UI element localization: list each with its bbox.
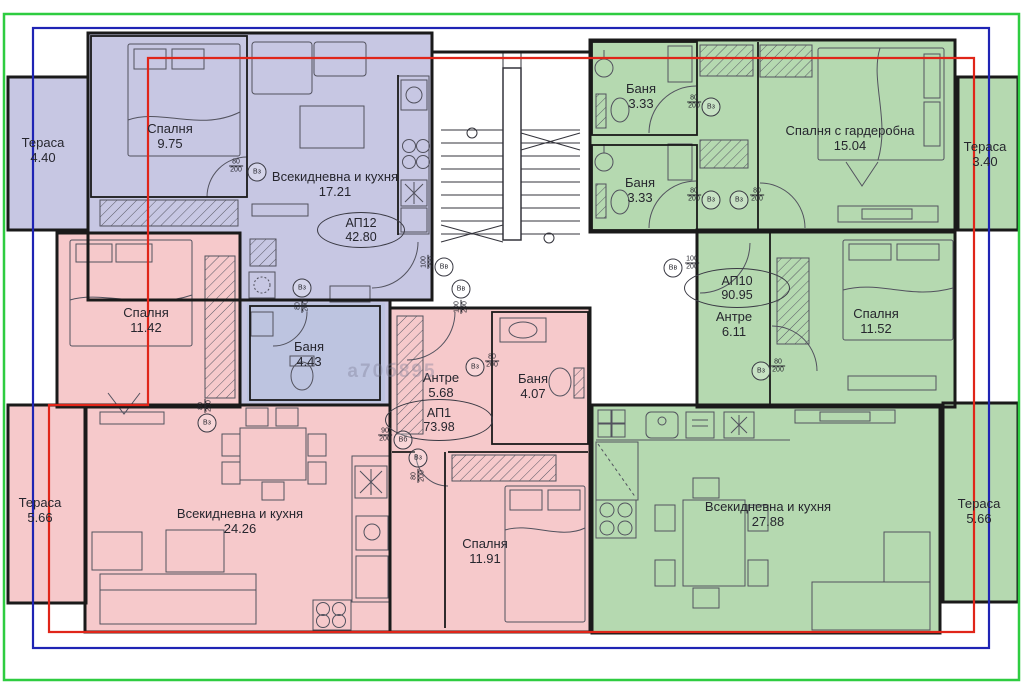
- door-mark-circle: Вз: [409, 449, 428, 468]
- room-label-ap10-master-bedroom: Спалня с гардеробна15.04: [786, 123, 915, 153]
- room-label-ap1-bedroom1: Спалня11.42: [123, 305, 168, 335]
- door-size: 80200: [750, 188, 764, 203]
- room-label-ap10-bath1: Баня3.33: [626, 81, 656, 111]
- door-mark-circle: Вв: [435, 258, 454, 277]
- door-size: 100200: [454, 300, 469, 314]
- room-label-ap10-living: Всекидневна и кухня27.88: [705, 499, 831, 529]
- door-size: 80200: [687, 95, 701, 110]
- door-size: 100200: [421, 255, 436, 269]
- room-label-ap10-bedroom2: Спалня11.52: [853, 306, 898, 336]
- door-mark-circle: Вз: [702, 191, 721, 210]
- apartment-badge-ap10: АП1090.95: [684, 268, 790, 308]
- door-size: 80200: [771, 359, 785, 374]
- door-mark-circle: Вз: [293, 279, 312, 298]
- door-mark-circle: Вб: [394, 431, 413, 450]
- door-size: 80200: [687, 188, 701, 203]
- door-size: 80200: [411, 469, 426, 483]
- room-label-ap1-bath: Баня4.07: [518, 371, 548, 401]
- room-label-ap10-hall: Антре6.11: [716, 309, 752, 339]
- terrace-label-top-left: Тераса4.40: [22, 135, 65, 165]
- door-mark-circle: Вз: [466, 358, 485, 377]
- door-mark-circle: Вз: [730, 191, 749, 210]
- terrace-label-bottom-right: Тераса5.66: [958, 496, 1001, 526]
- door-size: 90200: [378, 428, 392, 443]
- door-size: 80200: [485, 354, 499, 369]
- door-mark-circle: Вв: [452, 280, 471, 299]
- door-size: 80200: [229, 159, 243, 174]
- door-mark-circle: Вз: [752, 362, 771, 381]
- watermark-text: а70б895: [347, 361, 436, 383]
- door-mark-circle: Вв: [664, 259, 683, 278]
- room-label-ap12-living: Всекидневна и кухня17.21: [272, 169, 398, 199]
- terrace-label-bottom-left: Тераса5.66: [19, 495, 62, 525]
- room-label-ap1-bedroom2: Спалня11.91: [462, 536, 507, 566]
- door-size: 80200: [295, 299, 310, 313]
- door-size: 80200: [198, 399, 213, 413]
- room-label-ap10-bath2: Баня3.33: [625, 175, 655, 205]
- door-mark-circle: Вз: [248, 163, 267, 182]
- room-label-ap12-bath: Баня4.43: [294, 339, 324, 369]
- room-label-ap1-living: Всекидневна и кухня24.26: [177, 506, 303, 536]
- door-mark-circle: Вз: [702, 98, 721, 117]
- door-size: 100200: [685, 256, 699, 271]
- staircase: [441, 52, 580, 243]
- room-label-ap12-bedroom: Спалня9.75: [147, 121, 192, 151]
- terrace-label-top-right: Тераса3.40: [964, 139, 1007, 169]
- apartment-badge-ap12: АП1242.80: [317, 212, 405, 248]
- floor-plan-drawing: [0, 0, 1024, 695]
- door-mark-circle: Вз: [198, 414, 217, 433]
- floor-plan-page: Спалня9.75 Всекидневна и кухня17.21 Баня…: [0, 0, 1024, 695]
